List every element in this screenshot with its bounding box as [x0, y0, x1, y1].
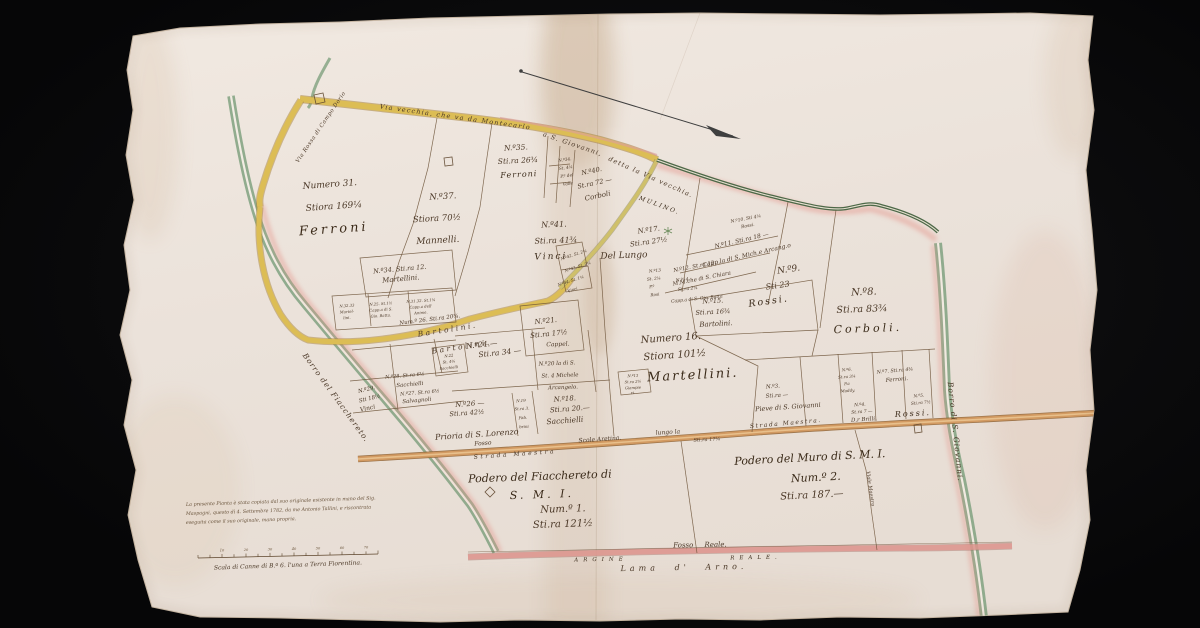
parcel-13b-line1: N.º13 [626, 373, 639, 379]
label-del-lungo: Del Lungo [599, 250, 648, 262]
parcel-35-number: N.º35. [503, 142, 528, 152]
parcel-41-area: Sti.ra 41¾ [534, 235, 577, 245]
podere-1-smi: S. M. I. [510, 487, 575, 502]
scale-tick-40: 40 [291, 547, 297, 551]
parcel-13-line3: P.º [648, 284, 655, 290]
scale-tick-60: 60 [340, 546, 345, 550]
parcel-19-line3: Fab. [517, 415, 527, 421]
podere-1-number: Num.º 1. [539, 503, 586, 516]
parcel-3233-line3: lini. [343, 315, 351, 320]
parcel-5-number: N.º5. [912, 393, 924, 399]
parcel-19-line1: N.19 [515, 398, 526, 404]
parcel-8-number: N.º8. [850, 287, 877, 299]
scale-tick-10: 10 [220, 549, 225, 553]
scanned-map-page: 10 20 30 40 50 60 70 Scala di Canne di B… [0, 0, 1200, 628]
parcel-19-line4: brini [519, 424, 530, 430]
parcel-20-line2: N.º20 la di S. [537, 359, 575, 367]
label-fosso-reale: Fosso Reale. [672, 541, 727, 550]
map-svg: 10 20 30 40 50 60 70 Scala di Canne di B… [0, 0, 1200, 628]
parcel-8-area: Sti.ra 83¾ [836, 303, 887, 316]
stain-top-right-edge [1045, 0, 1105, 160]
podere-2-number: Num.º 2. [790, 470, 841, 486]
road-label-lungo-la: lungo la [655, 428, 680, 436]
stain-right [990, 230, 1100, 530]
parcel-41-number: N.º41. [540, 220, 567, 230]
parcel-20-line1: Cappel. [546, 341, 570, 349]
scale-tick-20: 20 [243, 548, 249, 552]
label-argine: ARGINE [573, 557, 628, 564]
parcel-13b-line2: St.ra 2½ [624, 379, 641, 385]
scale-tick-50: 50 [316, 547, 321, 551]
parcel-6-line3: P.a [843, 381, 850, 386]
parcel-3-number: N.º3. [765, 383, 781, 391]
road-label-fosso: Fosso [473, 439, 492, 447]
parcel-20-line4: Arcangelo. [547, 384, 578, 391]
parcel-19-line2: St.ra 3. [514, 406, 529, 412]
road-label-sti17: Sti.ra 17¼ [693, 435, 720, 443]
parcel-8-owner: Corboli. [833, 321, 902, 336]
label-argine-reale: REALE. [729, 555, 782, 562]
parcel-37-number: N.º37. [428, 191, 457, 202]
parcel-13b-line4: ri. [631, 390, 636, 395]
scale-tick-70: 70 [364, 546, 369, 550]
parcel-4-number: N.º4. [853, 402, 866, 409]
parcel-6-line1: N.º6. [841, 367, 853, 373]
scale-tick-30: 30 [268, 548, 273, 552]
stain-bottom-left [110, 395, 240, 585]
parcel-15-number: N.º15. [701, 296, 723, 305]
parcel-3132-line3: Anime. [413, 310, 428, 316]
parcel-18-number: N.º18. [552, 394, 576, 404]
podere-1-area: Sti.ra 121½ [533, 518, 593, 531]
